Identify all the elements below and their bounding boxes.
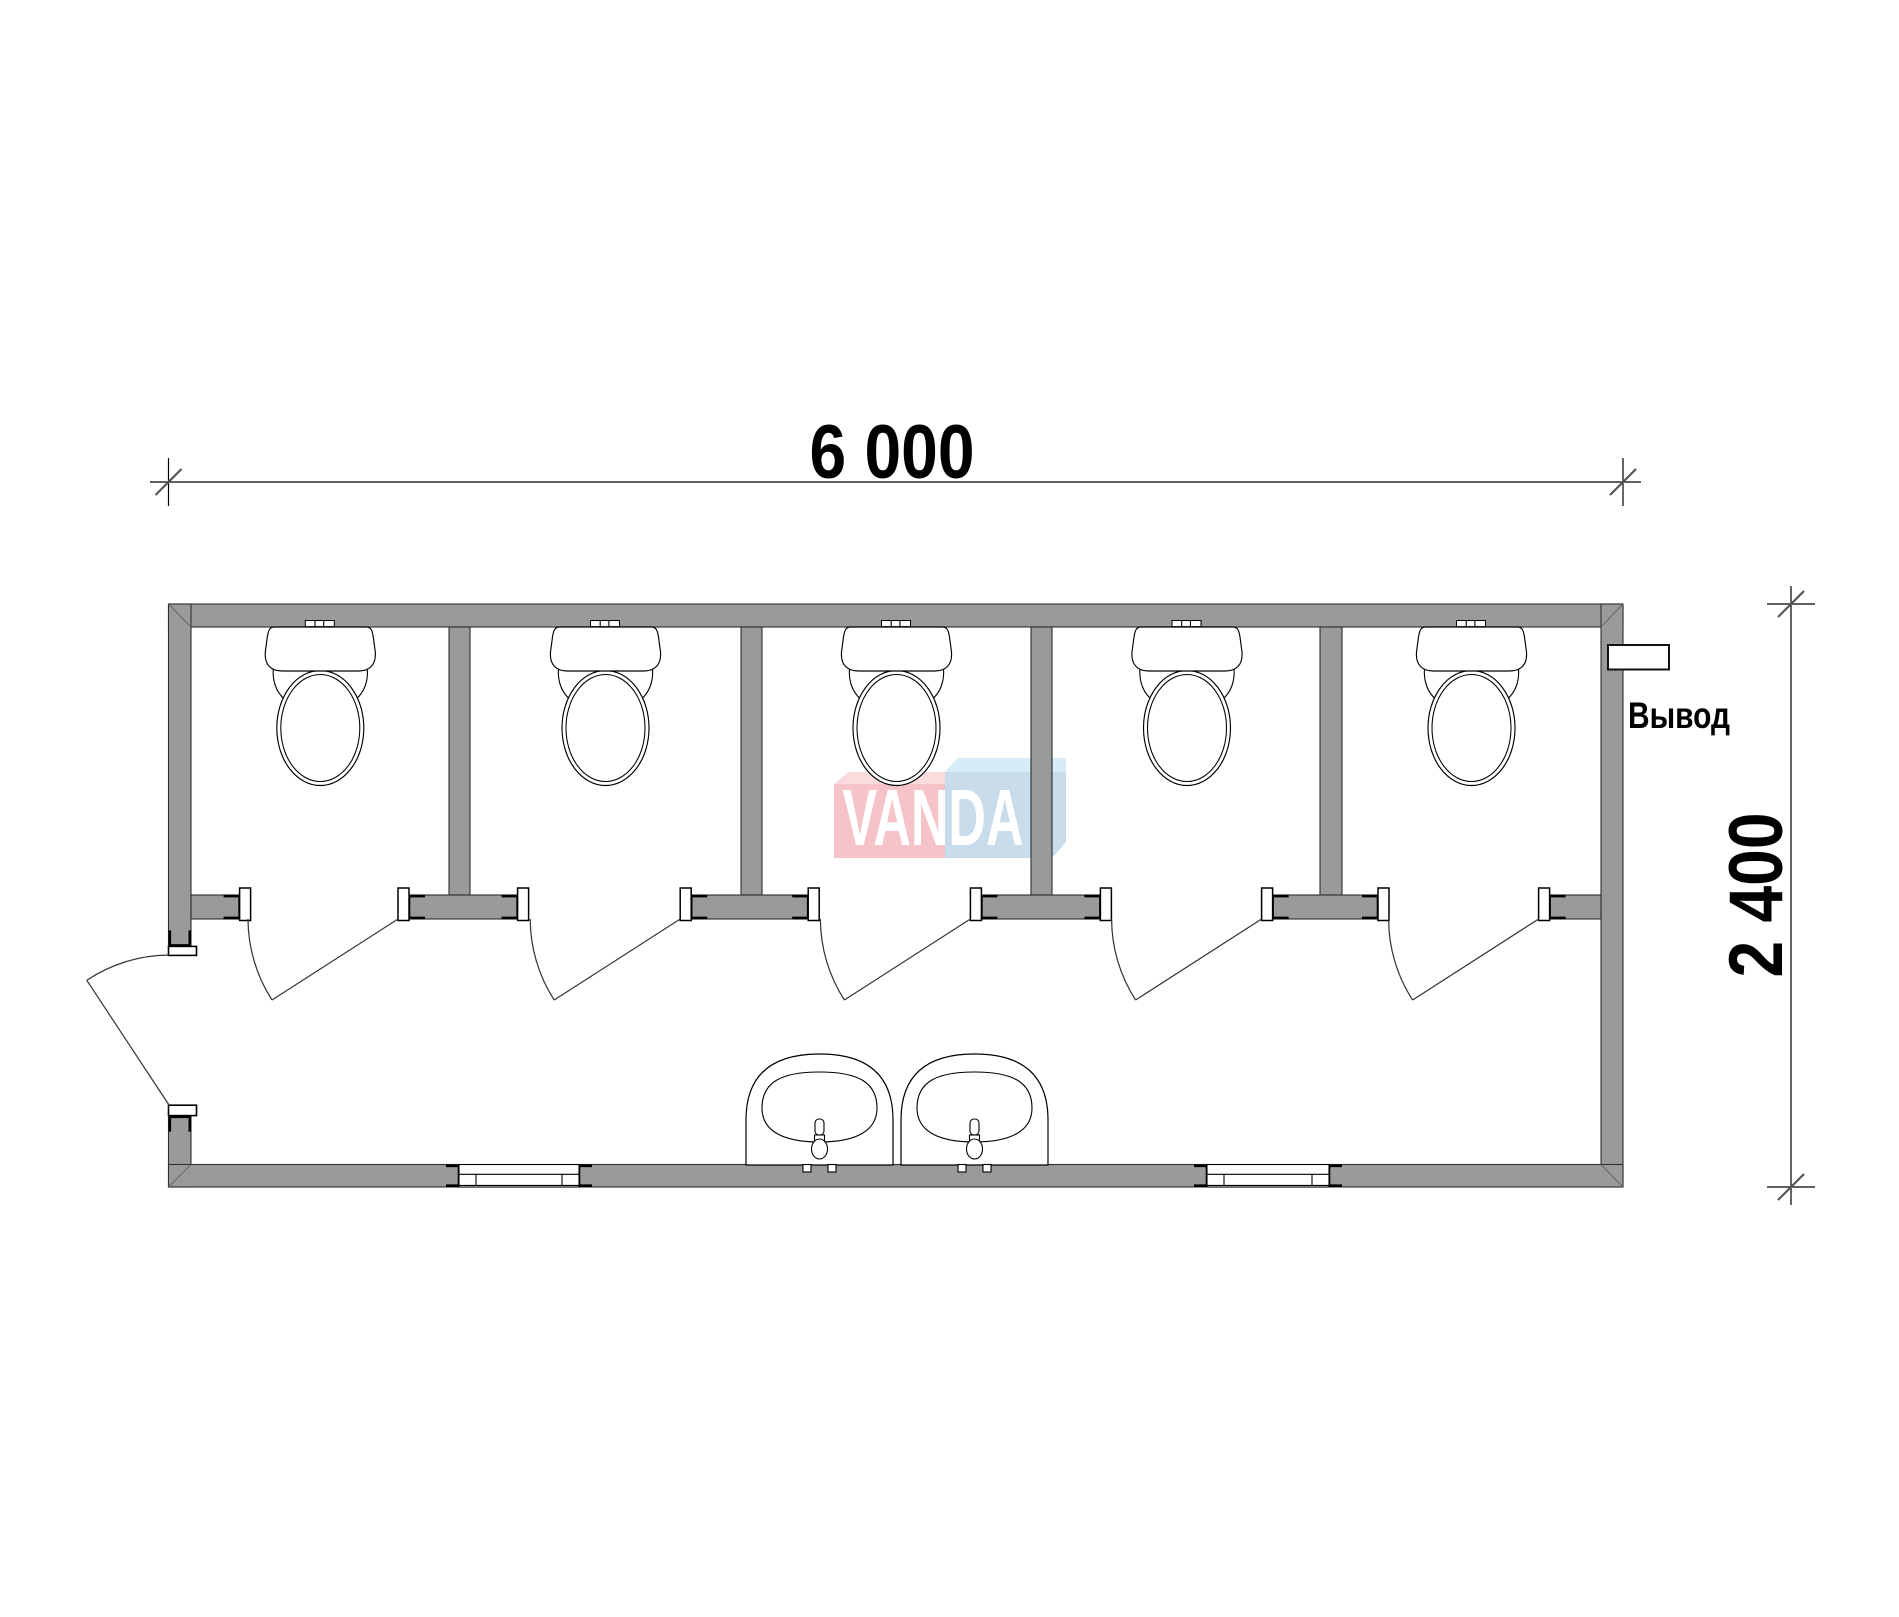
svg-text:Вывод: Вывод	[1628, 695, 1730, 737]
svg-text:2 400: 2 400	[1715, 812, 1799, 977]
svg-text:6 000: 6 000	[809, 411, 974, 495]
svg-text:VANDA: VANDA	[842, 774, 1023, 863]
